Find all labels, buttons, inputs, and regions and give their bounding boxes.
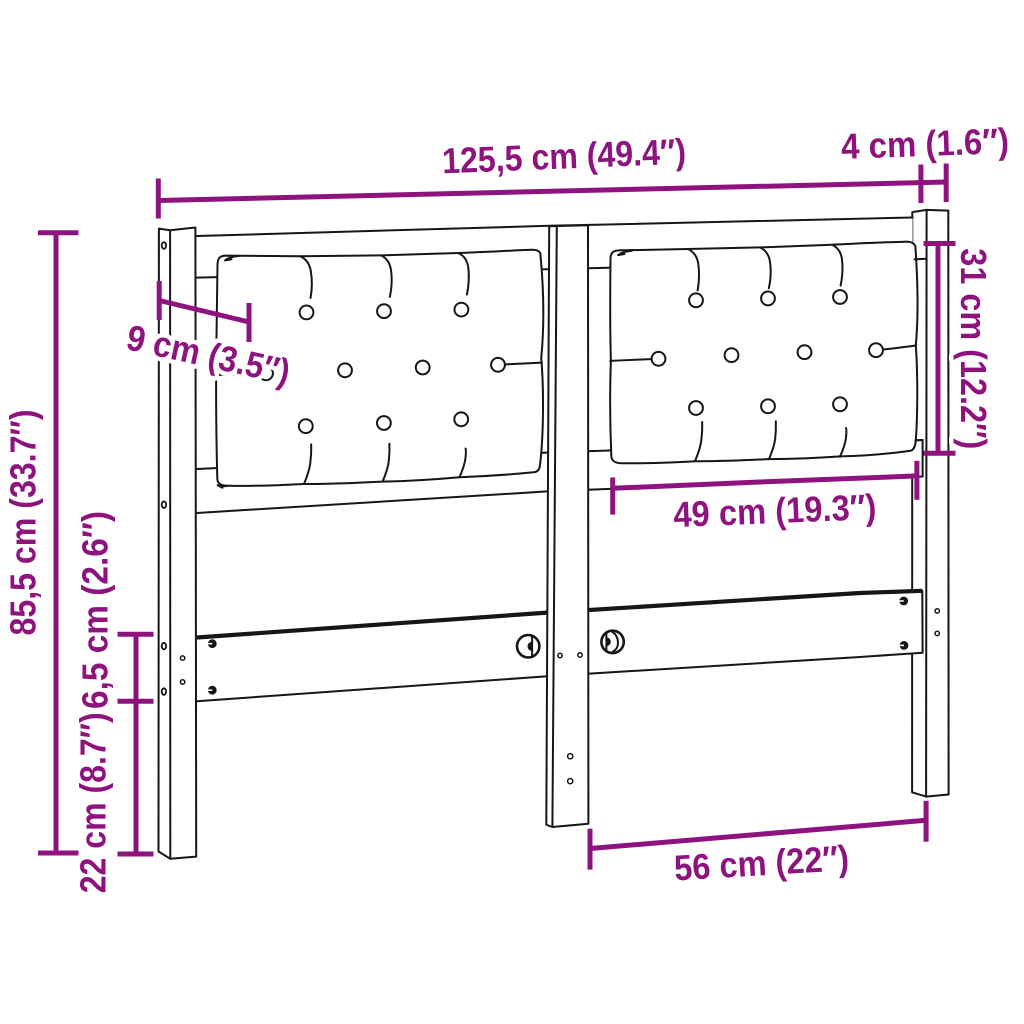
svg-text:4 cm (1.6″): 4 cm (1.6″) (840, 120, 1009, 167)
svg-text:49 cm (19.3″): 49 cm (19.3″) (673, 486, 877, 535)
svg-text:85,5 cm (33.7″): 85,5 cm (33.7″) (2, 410, 43, 636)
svg-text:31 cm (12.2″): 31 cm (12.2″) (953, 248, 994, 449)
svg-text:6,5 cm (2.6″): 6,5 cm (2.6″) (75, 511, 116, 709)
svg-text:22 cm (8.7″): 22 cm (8.7″) (73, 712, 114, 893)
